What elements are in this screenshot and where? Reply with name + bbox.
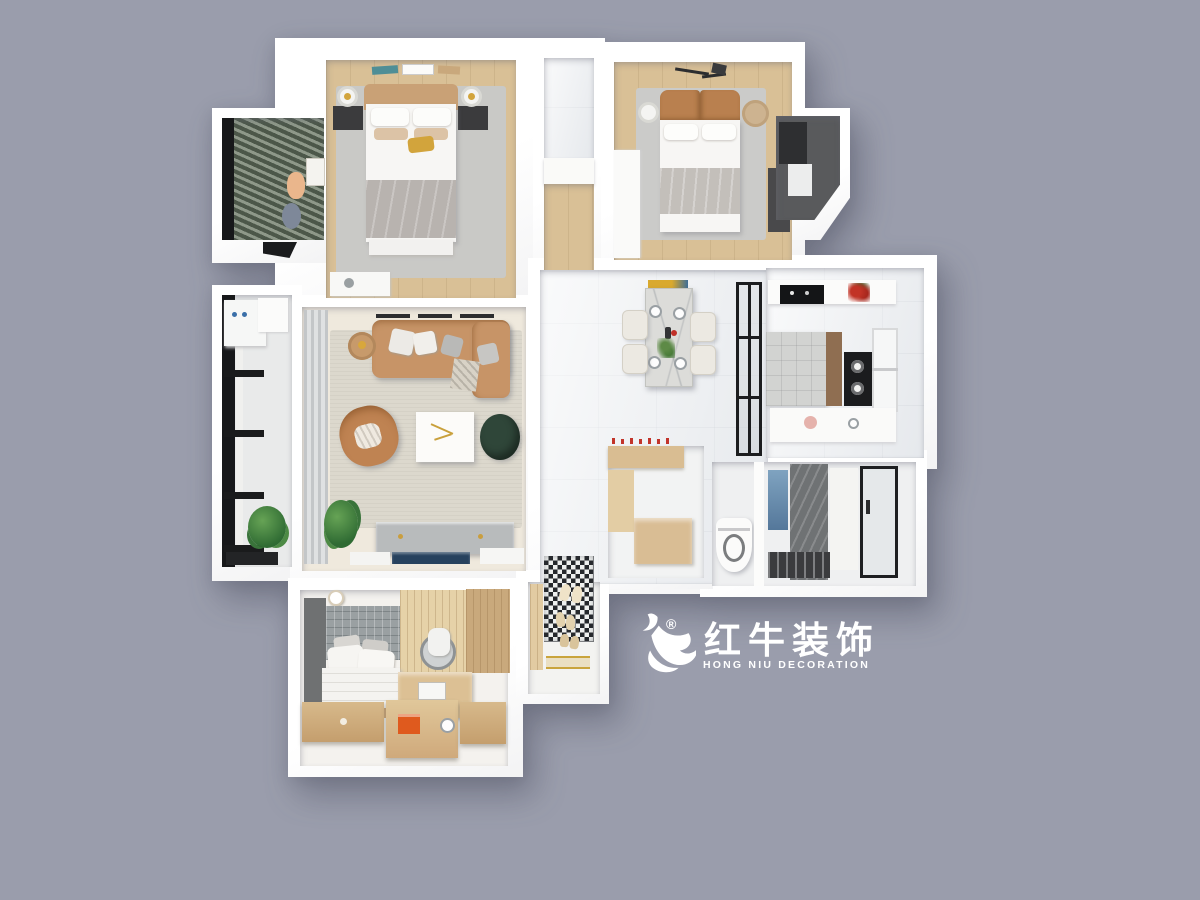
dimension-mark-red [648, 438, 651, 444]
slipper [560, 634, 570, 648]
dresser [330, 272, 390, 296]
shower-glass-blue [768, 470, 788, 530]
tall-cabinet-wood [608, 470, 634, 532]
bath-divider-wall [754, 462, 764, 586]
floor-plan-render: ® 红牛装饰 HONG NIU DECORATION [0, 0, 1200, 900]
shoe-bench-wood [530, 584, 543, 670]
pinboard-notes [306, 158, 325, 186]
window-bar [224, 492, 264, 499]
second-blanket [660, 168, 740, 214]
brand-name-cn: 红牛装饰 [704, 622, 880, 659]
side-table-round [638, 102, 659, 123]
console-knob [398, 534, 403, 539]
dimension-mark-red [657, 439, 660, 444]
headboard-cushion [700, 90, 740, 122]
rose-red [671, 330, 677, 336]
nook-chair [287, 172, 305, 199]
storage-box [788, 164, 812, 196]
balcony-plant [248, 506, 286, 548]
door-handle [866, 500, 870, 514]
master-blanket [366, 180, 456, 238]
bean-bag [282, 203, 301, 229]
window-mullion [872, 368, 898, 371]
pillow [388, 328, 416, 356]
toilet-tank-line [718, 528, 750, 531]
dimension-mark-red [621, 439, 624, 444]
floor-lamp-gold [358, 341, 366, 349]
wall-art [438, 65, 460, 74]
cabinet-wood [460, 702, 506, 744]
ottoman-green [480, 414, 520, 460]
pillow [413, 108, 451, 126]
cabinet-white [258, 298, 288, 332]
base-cabinet [770, 408, 896, 442]
floor-mat [350, 552, 390, 565]
floor-mat [480, 548, 524, 564]
console-knob [478, 534, 483, 539]
table-greens [657, 338, 675, 358]
headboard-cushion [660, 90, 700, 122]
slipper [566, 615, 575, 630]
registered-icon: ® [666, 616, 676, 632]
wood-platform [634, 518, 692, 564]
window-bar [224, 430, 264, 437]
closet-white [614, 150, 640, 258]
pillow [371, 108, 409, 126]
washing-machine [779, 122, 807, 164]
throw-pillow-gold [407, 135, 435, 153]
burner [851, 360, 864, 373]
bed-bench [369, 240, 453, 255]
wall-art [402, 64, 434, 75]
window-ledge-bracket [460, 314, 494, 318]
bath-cabinet-wood [608, 446, 684, 468]
corridor-cabinet [544, 158, 594, 184]
tv-panel [392, 552, 470, 564]
chair-cushion [428, 628, 450, 656]
washer-dial [232, 312, 237, 317]
shower-fixtures [768, 552, 830, 578]
flower-red [848, 283, 870, 302]
brand-name-en: HONG NIU DECORATION [703, 659, 870, 671]
dining-chair [690, 312, 716, 342]
living-plant [324, 500, 358, 548]
window-ledge-bracket [376, 314, 410, 318]
dimension-mark-red [639, 439, 642, 444]
basket-table [742, 100, 769, 127]
window-bar [224, 370, 264, 377]
plate [673, 307, 686, 320]
door-mat [546, 656, 590, 669]
pillow [664, 124, 698, 140]
balcony-sill-dark [226, 552, 278, 565]
corridor-floor [544, 58, 594, 160]
plate [674, 357, 687, 370]
partition-mullion [738, 396, 760, 399]
shower-column-white [830, 468, 858, 570]
decor-plate [440, 718, 455, 733]
laptop [418, 682, 446, 700]
nightstand-left [333, 106, 363, 130]
utensil-dot [805, 291, 809, 295]
dining-chair [622, 344, 648, 374]
pillow [412, 330, 437, 355]
range-hood-black [780, 285, 824, 304]
watermark-logo: ® 红牛装饰 HONG NIU DECORATION [630, 598, 930, 686]
dresser-decor [344, 278, 354, 288]
lamp-bulb [344, 93, 351, 100]
cabinet-knob [340, 718, 347, 725]
dish [848, 418, 859, 429]
burner [851, 382, 864, 395]
counter-wood-edge [826, 332, 842, 406]
kitchen-sink-round [804, 416, 817, 429]
toilet-seat-ring [723, 534, 745, 562]
dimension-mark-red [612, 438, 615, 444]
utensil-dot [790, 291, 794, 295]
partition-mullion [748, 284, 751, 454]
washer-dial [242, 312, 247, 317]
plate [649, 305, 662, 318]
window-ledge-bracket [418, 314, 452, 318]
pillow [702, 124, 736, 140]
partition-mullion [738, 336, 760, 339]
throw-blanket [450, 358, 480, 391]
dimension-mark-red [666, 438, 669, 444]
lamp-bulb [468, 93, 475, 100]
apartment-plan [0, 0, 1200, 900]
nook-window [222, 118, 234, 240]
pendant-lamp [328, 590, 344, 606]
nightstand-right [458, 106, 488, 130]
storage-box-orange [398, 714, 420, 734]
shower-glass-door [860, 466, 898, 578]
dimension-mark-red [630, 438, 633, 444]
kitchen-island [766, 332, 826, 406]
pillow [374, 128, 408, 140]
bull-icon [634, 612, 696, 674]
dining-chair [622, 310, 648, 340]
dining-chair [690, 345, 716, 375]
wood-slat-wall-dark [466, 589, 510, 673]
